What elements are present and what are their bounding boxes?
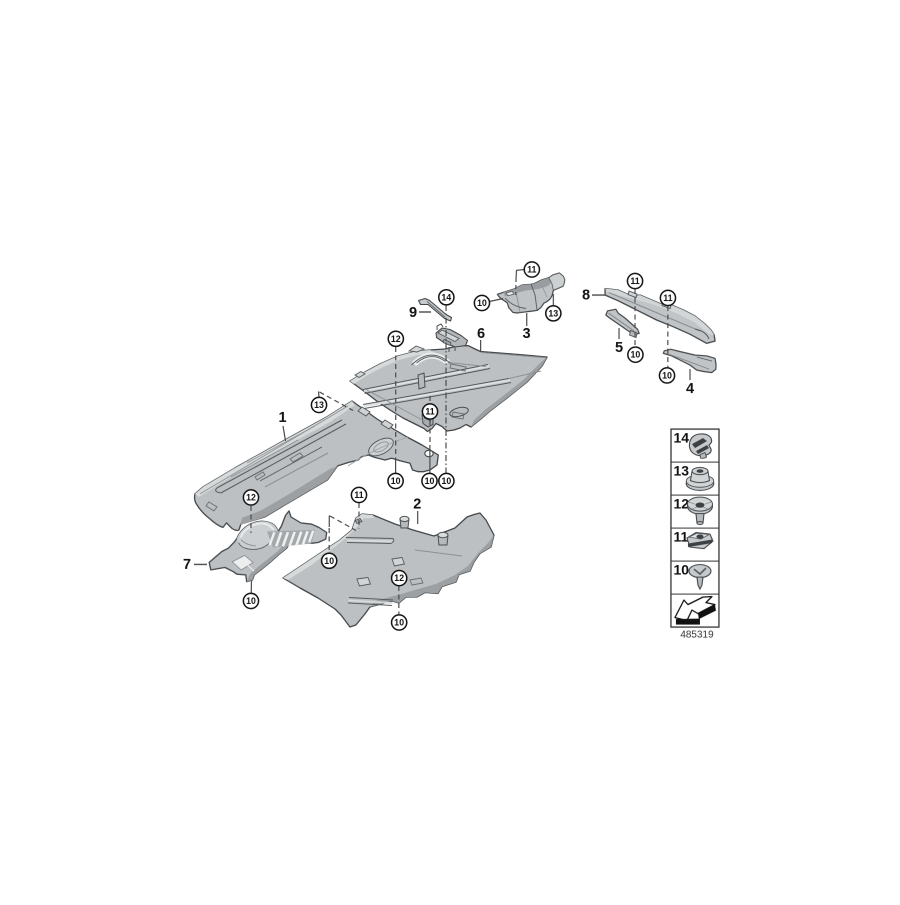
svg-text:10: 10 [246,596,256,606]
svg-text:13: 13 [673,463,689,479]
svg-text:485319: 485319 [680,630,714,641]
svg-text:10: 10 [391,476,401,486]
svg-text:5: 5 [615,340,623,356]
svg-text:12: 12 [673,496,689,512]
svg-text:6: 6 [477,326,485,342]
svg-text:10: 10 [662,371,672,381]
svg-text:12: 12 [391,334,401,344]
svg-text:11: 11 [354,490,363,500]
svg-text:13: 13 [548,308,558,318]
svg-text:10: 10 [673,562,689,578]
svg-text:11: 11 [425,407,434,417]
svg-text:14: 14 [441,292,451,302]
svg-text:11: 11 [673,529,688,545]
svg-text:2: 2 [413,496,421,512]
svg-text:12: 12 [394,573,404,583]
svg-text:1: 1 [278,410,286,426]
svg-text:11: 11 [630,276,639,286]
svg-text:10: 10 [324,556,334,566]
svg-text:10: 10 [425,476,435,486]
svg-text:10: 10 [394,618,404,628]
svg-text:7: 7 [183,557,191,573]
svg-text:3: 3 [522,326,530,342]
svg-text:4: 4 [686,381,694,397]
svg-text:9: 9 [409,305,417,321]
svg-text:11: 11 [527,265,536,275]
svg-text:13: 13 [314,400,324,410]
svg-text:11: 11 [663,293,672,303]
svg-text:8: 8 [582,288,590,304]
svg-text:10: 10 [477,298,487,308]
svg-text:10: 10 [631,350,641,360]
svg-text:12: 12 [246,493,256,503]
svg-text:14: 14 [674,430,690,446]
svg-text:10: 10 [441,476,451,486]
